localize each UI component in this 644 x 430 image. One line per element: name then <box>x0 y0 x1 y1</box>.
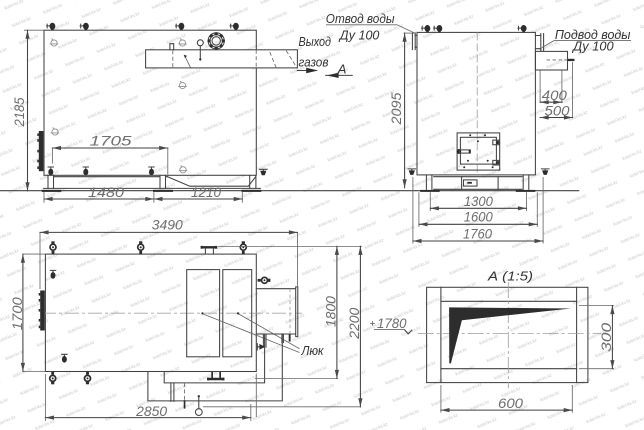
svg-text:Выход: Выход <box>299 34 332 49</box>
svg-text:2200: 2200 <box>346 308 362 340</box>
svg-text:1210: 1210 <box>191 184 221 200</box>
svg-text:400: 400 <box>542 87 567 103</box>
svg-text:2185: 2185 <box>11 97 27 127</box>
svg-text:1480: 1480 <box>88 184 124 200</box>
svg-text:1600: 1600 <box>464 209 493 225</box>
svg-text:1300: 1300 <box>464 193 493 209</box>
svg-text:600: 600 <box>498 395 523 411</box>
svg-text:1780: 1780 <box>377 315 407 331</box>
svg-text:1760: 1760 <box>463 226 492 242</box>
svg-text:500: 500 <box>545 103 570 119</box>
svg-text:2850: 2850 <box>135 403 167 419</box>
svg-text:1705: 1705 <box>90 133 132 149</box>
svg-text:Люк: Люк <box>301 343 325 358</box>
svg-text:300: 300 <box>598 323 614 352</box>
svg-text:2095: 2095 <box>388 92 404 125</box>
svg-text:А (1:5): А (1:5) <box>487 269 533 284</box>
svg-text:Ду 100: Ду 100 <box>338 27 380 42</box>
svg-text:1800: 1800 <box>322 296 338 327</box>
svg-text:1700: 1700 <box>9 297 25 330</box>
svg-text:3490: 3490 <box>152 217 183 233</box>
svg-text:Отвод воды: Отвод воды <box>326 11 395 26</box>
svg-text:газов: газов <box>299 55 329 70</box>
